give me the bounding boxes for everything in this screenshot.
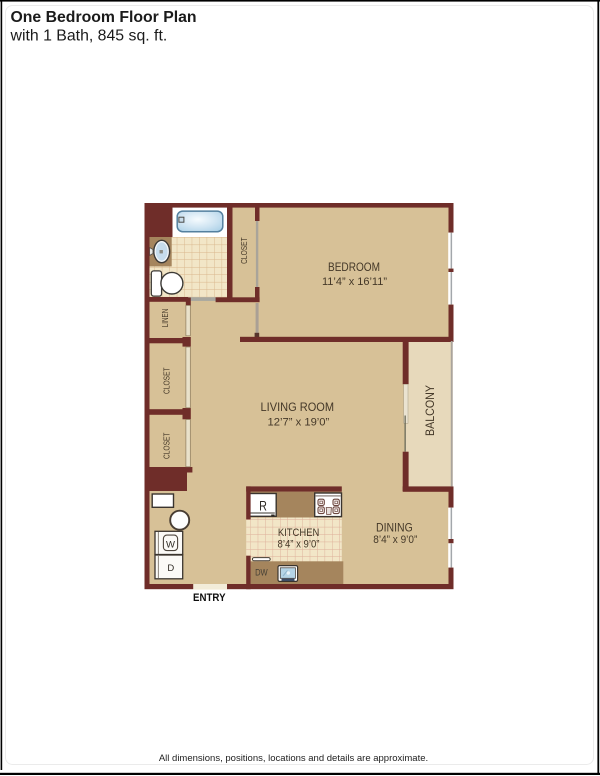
svg-text:CLOSET: CLOSET — [162, 367, 172, 394]
svg-text:8’4” x 9’0”: 8’4” x 9’0” — [373, 534, 417, 546]
svg-text:DW: DW — [255, 568, 268, 578]
svg-text:R: R — [259, 498, 267, 514]
svg-text:All dimensions, positions, loc: All dimensions, positions, locations and… — [159, 753, 428, 764]
svg-text:CLOSET: CLOSET — [162, 433, 172, 460]
svg-text:D: D — [167, 563, 174, 574]
svg-text:CLOSET: CLOSET — [239, 237, 249, 264]
svg-text:One Bedroom Floor Plan: One Bedroom Floor Plan — [11, 9, 197, 26]
svg-text:with 1 Bath, 845 sq. ft.: with 1 Bath, 845 sq. ft. — [10, 28, 168, 45]
svg-text:11’4” x 16’11”: 11’4” x 16’11” — [322, 276, 387, 288]
svg-text:12’7” x 19’0”: 12’7” x 19’0” — [268, 416, 330, 428]
svg-text:BEDROOM: BEDROOM — [328, 260, 380, 274]
svg-text:LIVING ROOM: LIVING ROOM — [261, 400, 335, 414]
svg-text:DINING: DINING — [376, 523, 413, 535]
svg-text:LINEN: LINEN — [161, 309, 170, 328]
svg-text:BALCONY: BALCONY — [425, 385, 437, 436]
svg-text:8’4” x 9’0”: 8’4” x 9’0” — [278, 539, 320, 551]
svg-text:ENTRY: ENTRY — [193, 592, 226, 604]
svg-text:KITCHEN: KITCHEN — [278, 527, 320, 539]
svg-text:W: W — [166, 539, 175, 550]
